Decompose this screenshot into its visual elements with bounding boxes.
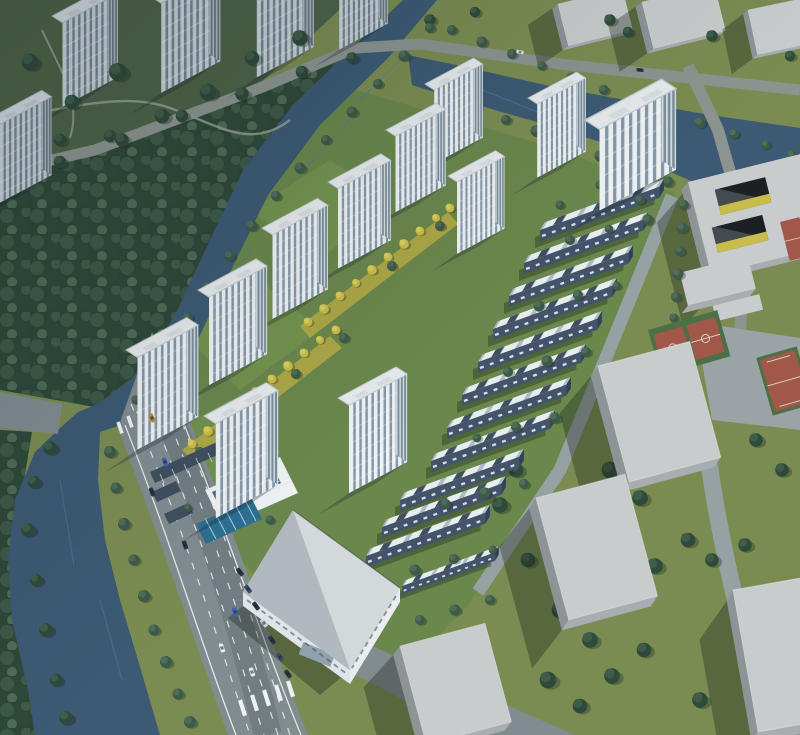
color-grade-overlay (0, 0, 800, 735)
aerial-rendering: Aerial bird's-eye architectural renderin… (0, 0, 800, 735)
masterplan-render-svg: Aerial bird's-eye architectural renderin… (0, 0, 800, 735)
